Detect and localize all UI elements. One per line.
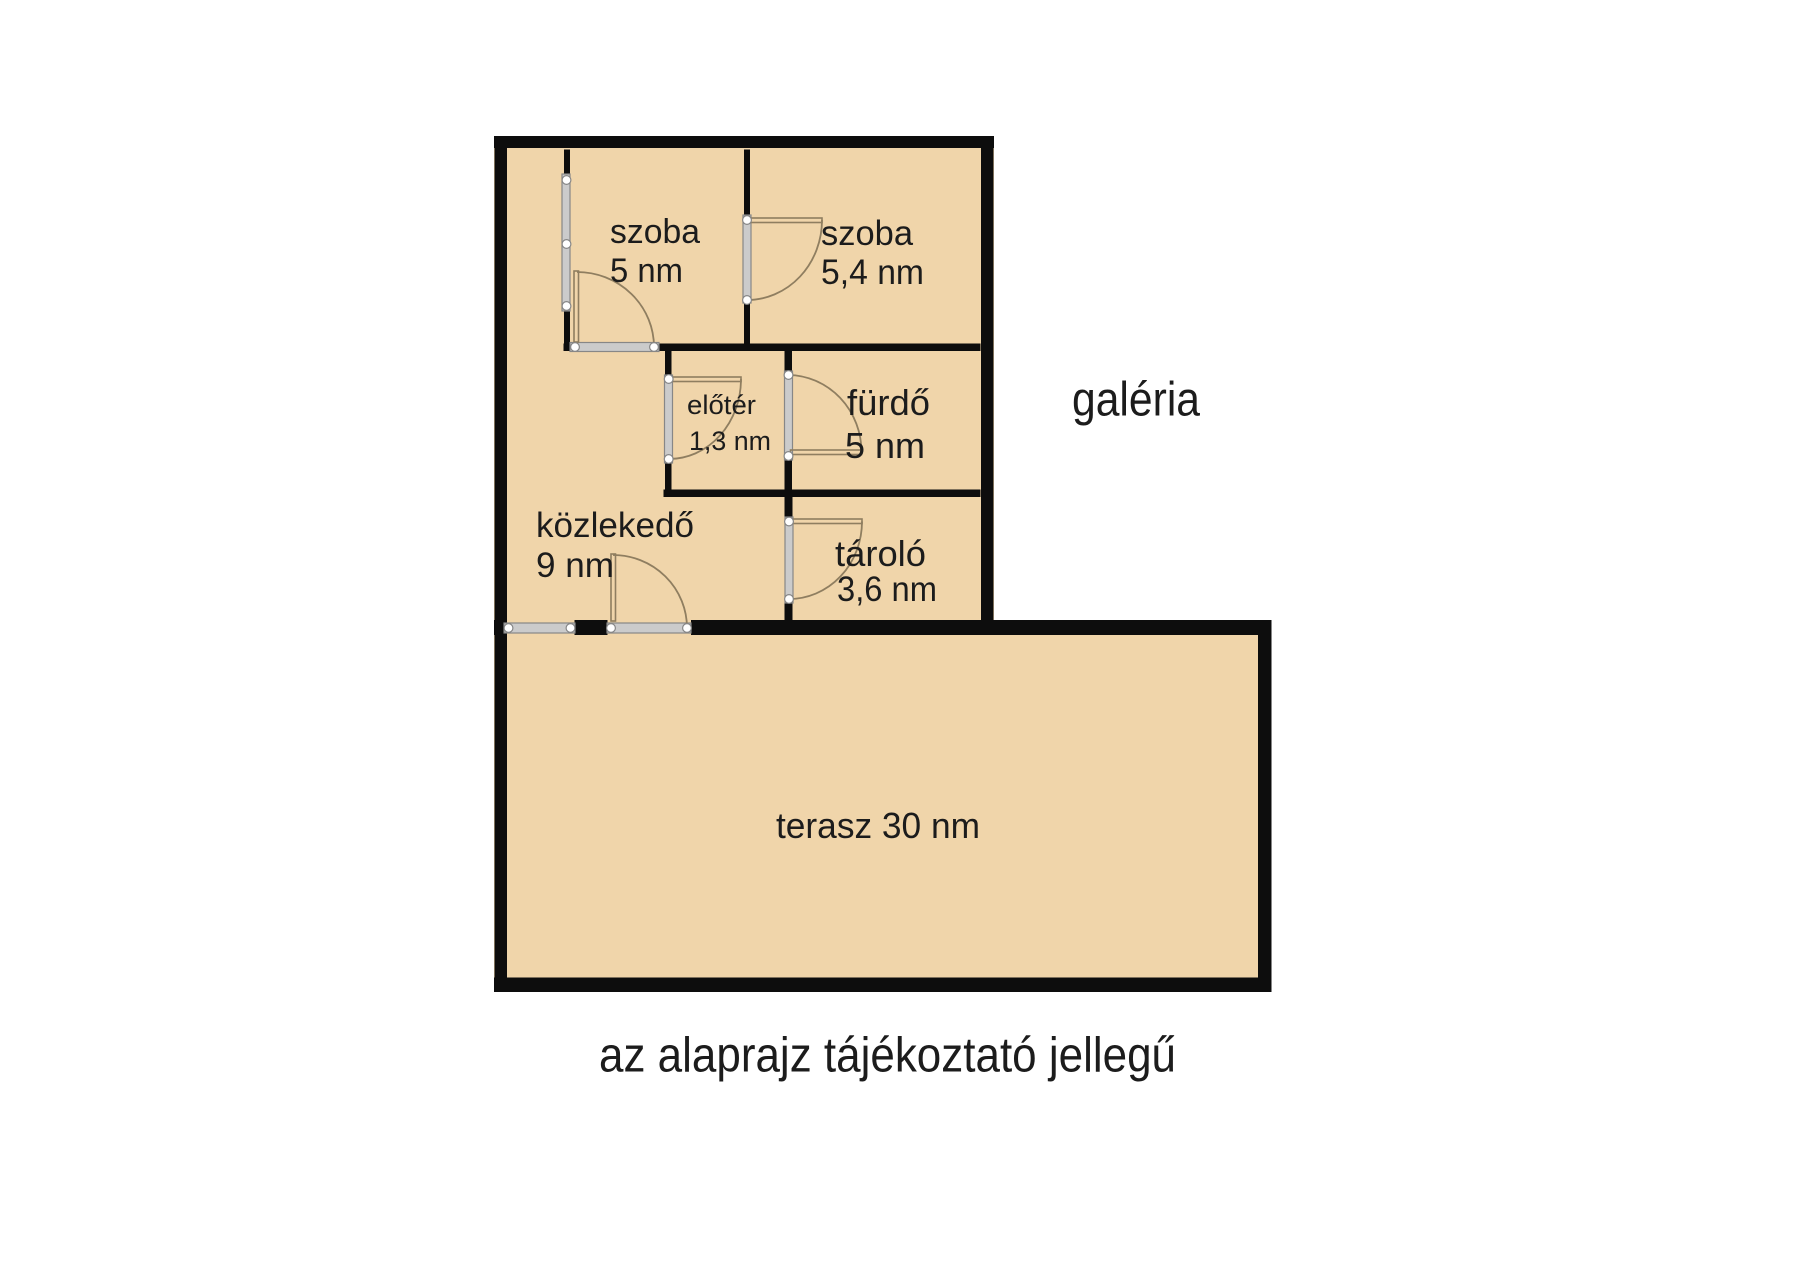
svg-text:fürdő: fürdő [847, 382, 930, 423]
svg-text:előtér: előtér [687, 390, 756, 420]
svg-text:terasz 30 nm: terasz 30 nm [776, 805, 980, 846]
svg-text:5 nm: 5 nm [610, 252, 683, 290]
svg-text:9 nm: 9 nm [536, 546, 614, 585]
svg-text:közlekedő: közlekedő [536, 506, 694, 545]
svg-text:1,3 nm: 1,3 nm [689, 426, 771, 456]
svg-text:5 nm: 5 nm [845, 425, 925, 466]
svg-text:szoba: szoba [821, 214, 914, 253]
svg-text:3,6 nm: 3,6 nm [837, 570, 937, 609]
svg-text:az alaprajz tájékoztató jelleg: az alaprajz tájékoztató jellegű [599, 1029, 1176, 1083]
svg-text:galéria: galéria [1072, 374, 1200, 427]
svg-text:5,4 nm: 5,4 nm [821, 253, 924, 292]
svg-text:szoba: szoba [610, 213, 700, 251]
svg-text:tároló: tároló [835, 533, 926, 574]
